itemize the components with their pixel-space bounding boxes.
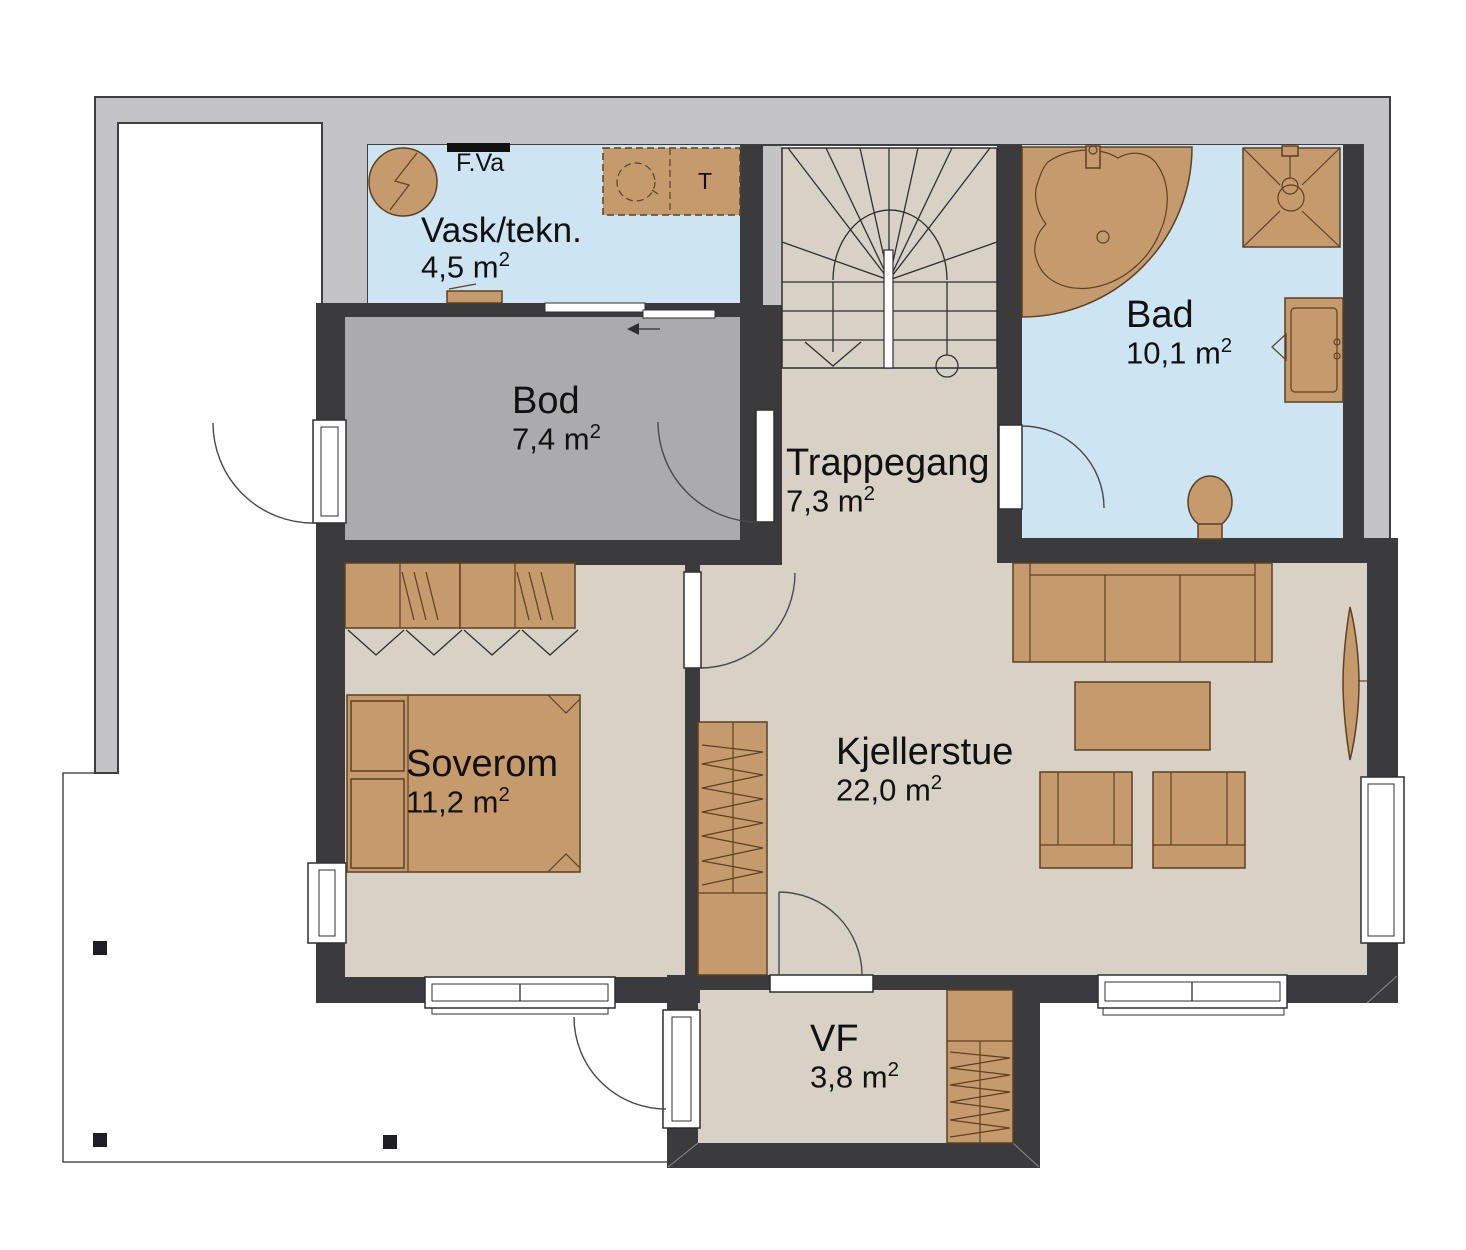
- room-area: 3,8 m2: [810, 1059, 899, 1094]
- coffee-table-icon: [1075, 682, 1210, 750]
- bod-exterior-door: [213, 420, 346, 523]
- floor-plan: Vask/tekn. 4,5 m2 Bod 7,4 m2 Trappegang …: [0, 0, 1466, 1250]
- room-label-bod: Bod 7,4 m2: [512, 381, 601, 456]
- sofa-icon: [1013, 563, 1272, 662]
- washer-dryer-icon: [603, 148, 740, 215]
- wall-bad-east: [1343, 145, 1363, 560]
- room-label-bad: Bad 10,1 m2: [1126, 295, 1232, 370]
- wall-stair-west-band: [763, 146, 782, 305]
- room-area: 22,0 m2: [836, 772, 1013, 807]
- kjellerstue-window-east: [1361, 777, 1404, 943]
- stair-spine: [884, 250, 893, 368]
- terrace-post: [93, 1133, 107, 1147]
- terrace-post: [93, 941, 107, 955]
- room-name: Trappegang: [786, 443, 990, 483]
- room-label-kjellerstue: Kjellerstue 22,0 m2: [836, 732, 1013, 807]
- soverom-window-west: [308, 863, 346, 943]
- room-name: Bad: [1126, 295, 1232, 335]
- room-label-trappegang: Trappegang 7,3 m2: [786, 443, 990, 518]
- vf-entry-door: [574, 1010, 700, 1128]
- wall-bod-soverom: [316, 540, 782, 565]
- room-name: Bod: [512, 381, 601, 421]
- shelving-unit-icon: [698, 722, 767, 975]
- wall-vask-east: [740, 145, 763, 305]
- room-name: VF: [810, 1019, 899, 1059]
- room-area: 4,5 m2: [421, 249, 582, 284]
- water-heater-icon: [369, 148, 437, 216]
- vf-wardrobe-icon: [947, 990, 1013, 1143]
- room-name: Vask/tekn.: [421, 212, 582, 249]
- soverom-window-south: [425, 977, 615, 1014]
- wall-bad-south: [997, 538, 1398, 563]
- floor-plan-drawing: [0, 0, 1466, 1250]
- armchair-icon: [1040, 772, 1132, 868]
- room-area: 7,4 m2: [512, 421, 601, 456]
- kjellerstue-window-south: [1098, 975, 1287, 1015]
- shower-fixture-icon: [1282, 146, 1298, 156]
- room-area: 7,3 m2: [786, 483, 990, 518]
- room-name: Soverom: [406, 744, 558, 784]
- bath-faucet-icon: [1086, 146, 1100, 168]
- room-label-vf: VF 3,8 m2: [810, 1019, 899, 1094]
- terrace-post: [383, 1135, 397, 1149]
- soverom-furniture: [345, 563, 580, 872]
- room-area: 11,2 m2: [406, 784, 558, 819]
- shower-icon: [1243, 146, 1340, 247]
- water-cabinet-label: F.Va: [456, 149, 504, 178]
- wall-vf-south: [667, 1143, 1040, 1168]
- armchair-icon: [1153, 772, 1245, 868]
- wall-vf-east: [1013, 990, 1040, 1168]
- room-label-vask: Vask/tekn. 4,5 m2: [421, 212, 582, 284]
- room-name: Kjellerstue: [836, 732, 1013, 772]
- dryer-label: T: [698, 168, 712, 195]
- room-area: 10,1 m2: [1126, 335, 1232, 370]
- room-label-soverom: Soverom 11,2 m2: [406, 744, 558, 819]
